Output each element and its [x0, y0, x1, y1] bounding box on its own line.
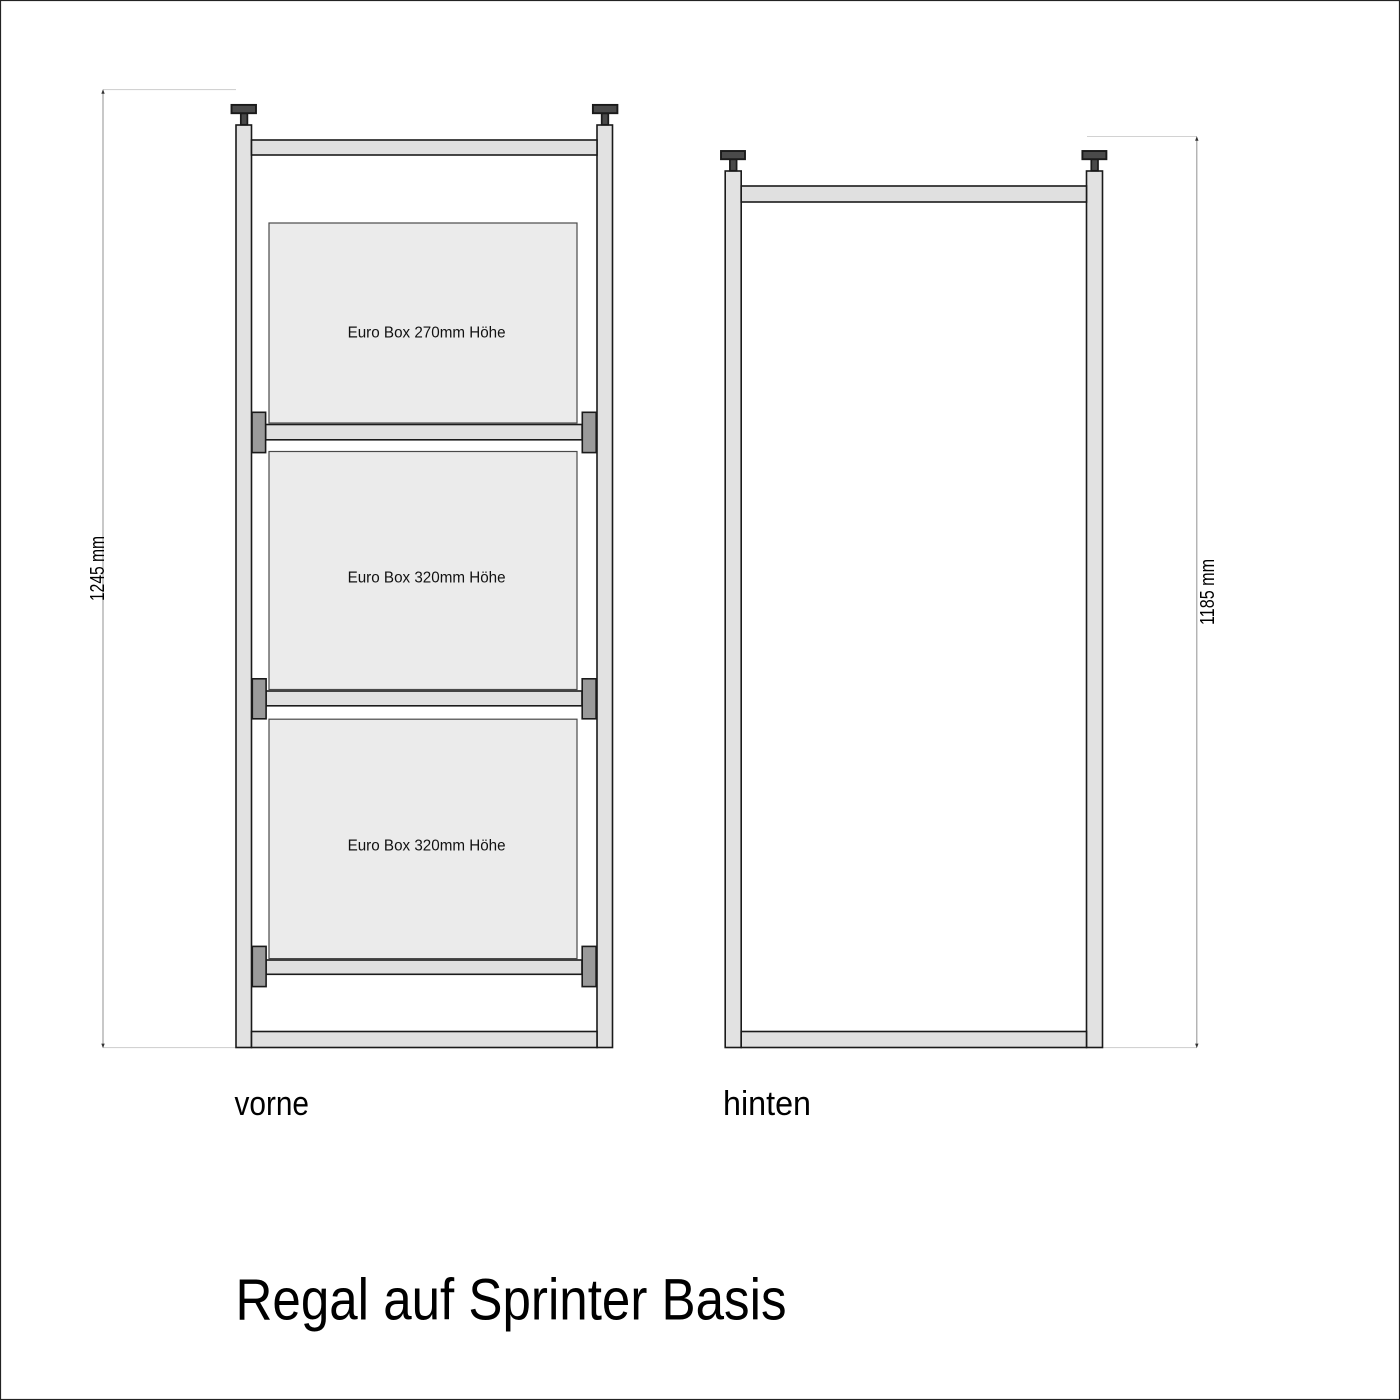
svg-text:hinten: hinten [723, 1085, 811, 1123]
svg-text:Euro Box 270mm Höhe: Euro Box 270mm Höhe [348, 325, 506, 342]
svg-text:Euro Box 320mm Höhe: Euro Box 320mm Höhe [348, 838, 506, 855]
svg-text:vorne: vorne [235, 1085, 310, 1123]
svg-text:1245 mm: 1245 mm [86, 536, 109, 601]
svg-text:Euro Box 320mm Höhe: Euro Box 320mm Höhe [348, 570, 506, 587]
svg-text:Regal auf Sprinter Basis: Regal auf Sprinter Basis [236, 1268, 787, 1333]
svg-text:1185 mm: 1185 mm [1196, 559, 1219, 625]
